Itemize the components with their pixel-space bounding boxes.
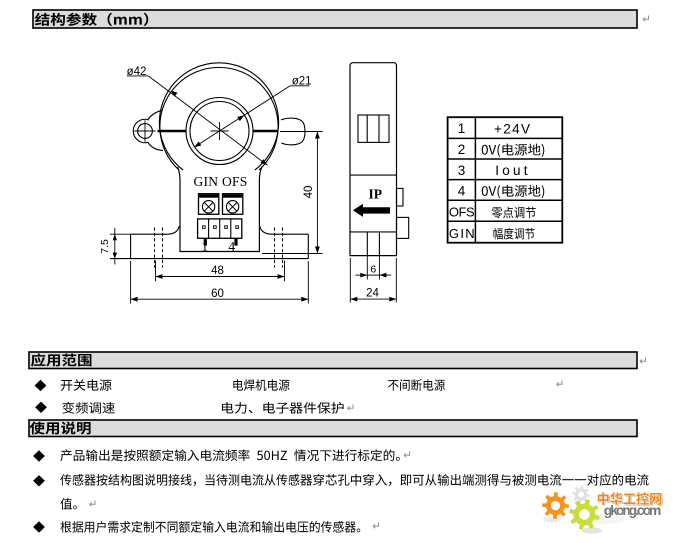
svg-text:GIN OFS: GIN OFS: [194, 174, 248, 189]
svg-text:OFS: OFS: [449, 205, 475, 220]
svg-text:3: 3: [458, 163, 466, 178]
svg-text:ø42: ø42: [127, 66, 147, 78]
svg-text:2: 2: [458, 142, 466, 157]
svg-text:IP: IP: [369, 187, 383, 202]
svg-text:4: 4: [458, 184, 466, 199]
svg-text:60: 60: [211, 288, 224, 300]
svg-text:40: 40: [303, 186, 315, 199]
svg-text:1: 1: [201, 239, 208, 254]
svg-text:ø21: ø21: [292, 75, 312, 87]
svg-text:gkong.com: gkong.com: [604, 502, 662, 518]
svg-text:Iout: Iout: [495, 163, 527, 178]
svg-text:6: 6: [370, 264, 376, 276]
svg-text:48: 48: [211, 265, 224, 277]
svg-text:GIN: GIN: [449, 226, 475, 241]
svg-text:1: 1: [458, 121, 466, 136]
svg-text:7.5: 7.5: [99, 239, 111, 254]
svg-text:4: 4: [228, 239, 235, 254]
svg-text:+24V: +24V: [494, 122, 530, 137]
svg-text:24: 24: [366, 288, 379, 300]
